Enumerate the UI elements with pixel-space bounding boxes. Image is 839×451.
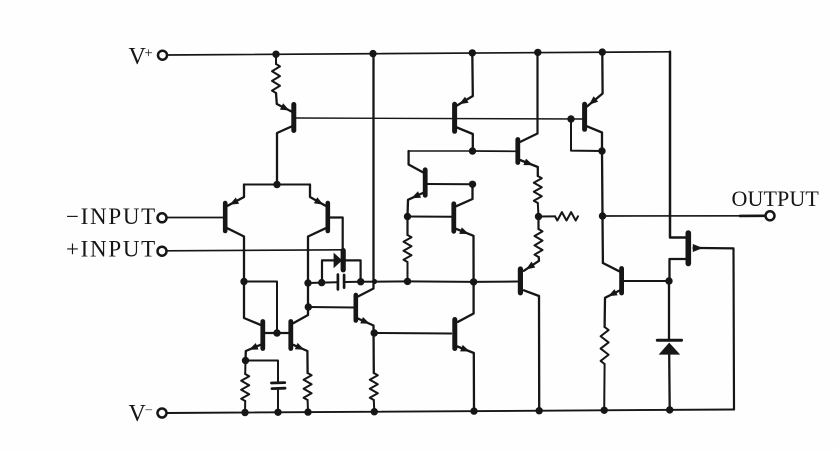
svg-text:−INPUT: −INPUT [66, 204, 157, 229]
svg-text:V: V [129, 401, 147, 427]
svg-text:OUTPUT: OUTPUT [732, 186, 820, 211]
svg-text:–: – [145, 401, 153, 416]
svg-text:+INPUT: +INPUT [66, 237, 157, 262]
svg-text:+: + [145, 46, 153, 62]
